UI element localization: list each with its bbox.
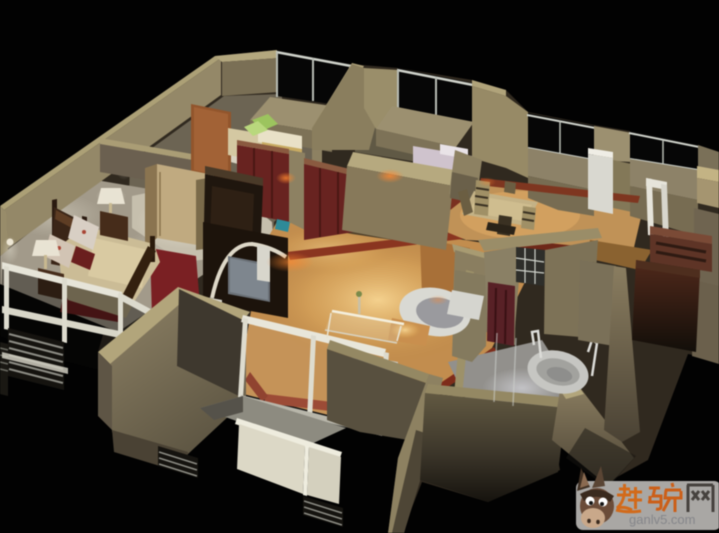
svg-text:ganlv5.com: ganlv5.com <box>629 512 695 527</box>
